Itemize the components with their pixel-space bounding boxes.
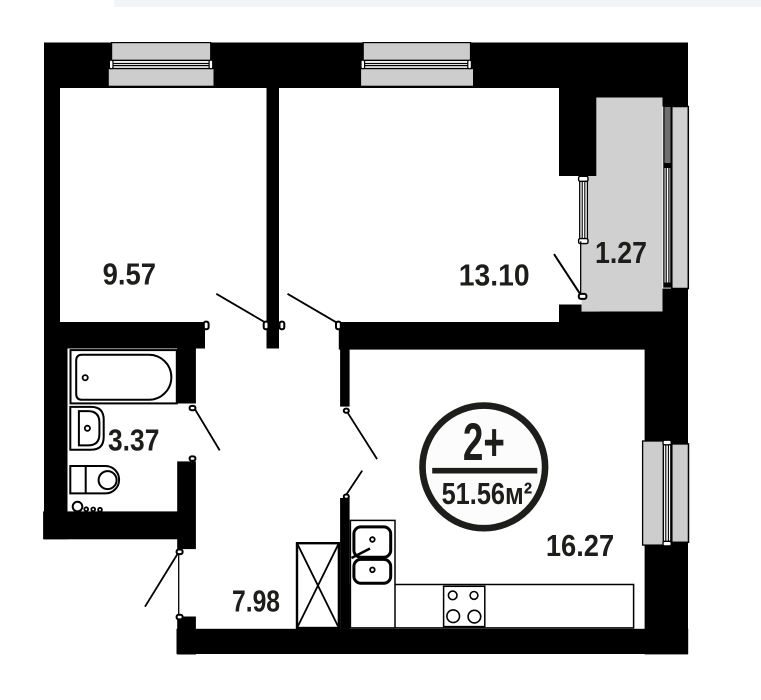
svg-text:3.37: 3.37	[108, 422, 159, 457]
svg-text:51.56м²: 51.56м²	[442, 476, 533, 511]
svg-text:7.98: 7.98	[232, 584, 280, 619]
svg-text:13.10: 13.10	[459, 257, 530, 292]
svg-text:9.57: 9.57	[103, 257, 156, 292]
svg-text:2+: 2+	[463, 413, 505, 472]
svg-text:1.27: 1.27	[595, 235, 647, 270]
svg-text:16.27: 16.27	[546, 528, 614, 563]
